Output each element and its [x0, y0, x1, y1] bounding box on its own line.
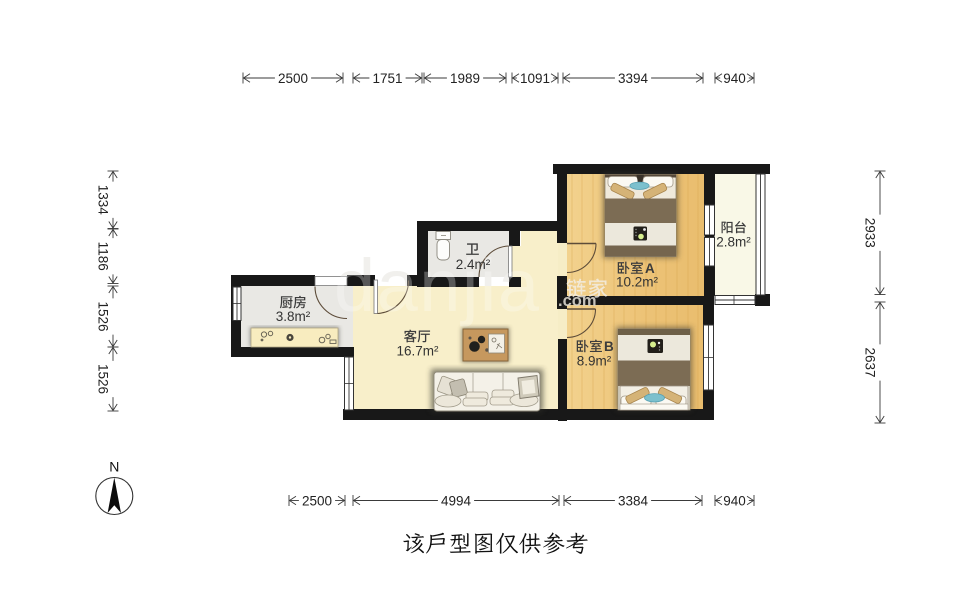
- svg-text:8.9m²: 8.9m²: [577, 353, 612, 368]
- svg-text:3.8m²: 3.8m²: [276, 309, 311, 324]
- svg-text:1526: 1526: [95, 301, 110, 331]
- svg-text:2500: 2500: [302, 493, 332, 508]
- svg-text:N: N: [109, 459, 119, 475]
- svg-text:940: 940: [723, 493, 746, 508]
- svg-text:2.4m²: 2.4m²: [456, 257, 491, 272]
- svg-text:3384: 3384: [618, 493, 649, 508]
- svg-text:danjia: danjia: [334, 244, 541, 327]
- svg-text:2637: 2637: [862, 347, 877, 377]
- svg-text:2.8m²: 2.8m²: [716, 235, 751, 250]
- svg-text:B: B: [604, 339, 614, 354]
- svg-text:1989: 1989: [450, 71, 480, 86]
- svg-text:10.2m²: 10.2m²: [616, 275, 659, 290]
- svg-text:1526: 1526: [95, 364, 110, 394]
- svg-text:2933: 2933: [862, 218, 877, 248]
- svg-text:940: 940: [723, 71, 746, 86]
- svg-text:16.7m²: 16.7m²: [396, 343, 439, 358]
- svg-text:1091: 1091: [520, 71, 550, 86]
- svg-text:1334: 1334: [95, 185, 110, 216]
- svg-text:1751: 1751: [372, 71, 402, 86]
- svg-text:.com: .com: [558, 292, 597, 310]
- svg-text:3394: 3394: [618, 71, 649, 86]
- svg-text:2500: 2500: [278, 71, 308, 86]
- svg-text:1186: 1186: [95, 242, 110, 271]
- svg-text:4994: 4994: [441, 493, 472, 508]
